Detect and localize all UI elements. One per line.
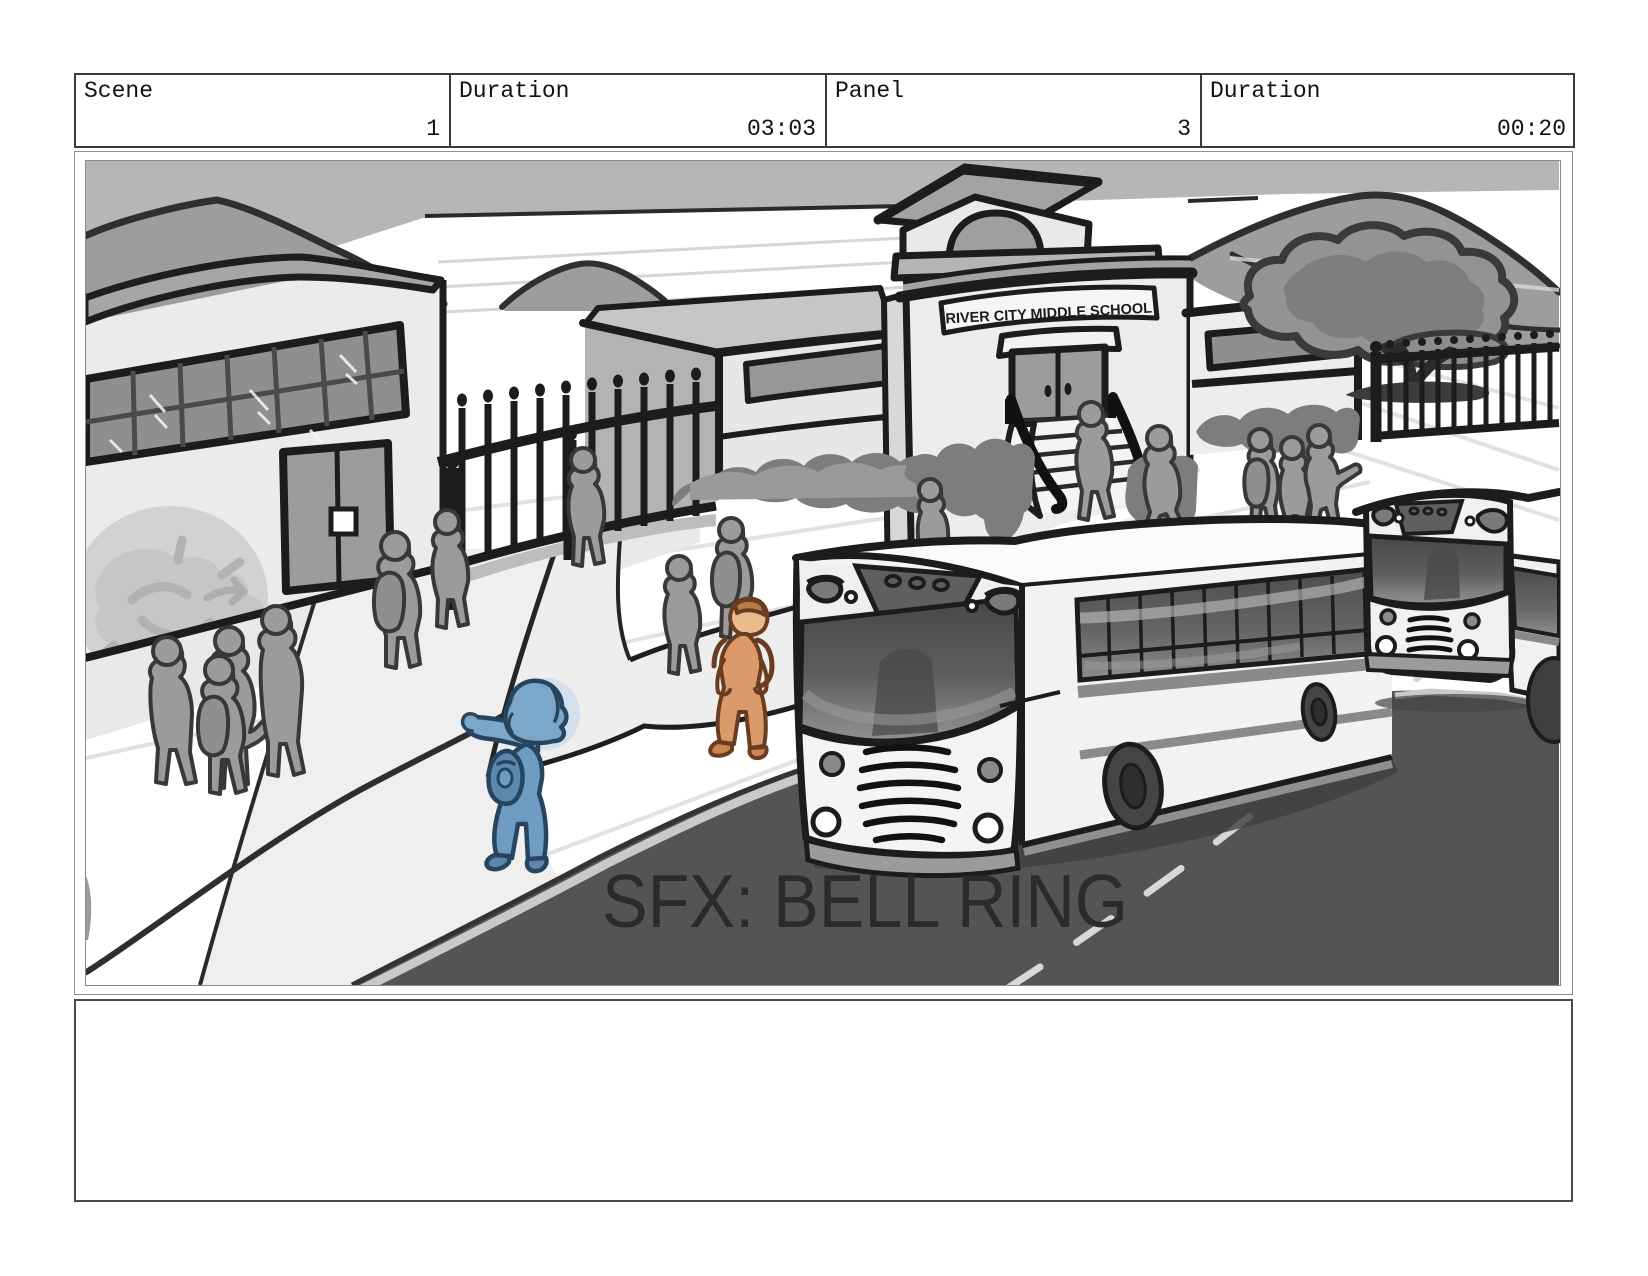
svg-text:SFX: BELL RING: SFX: BELL RING (602, 859, 1128, 943)
